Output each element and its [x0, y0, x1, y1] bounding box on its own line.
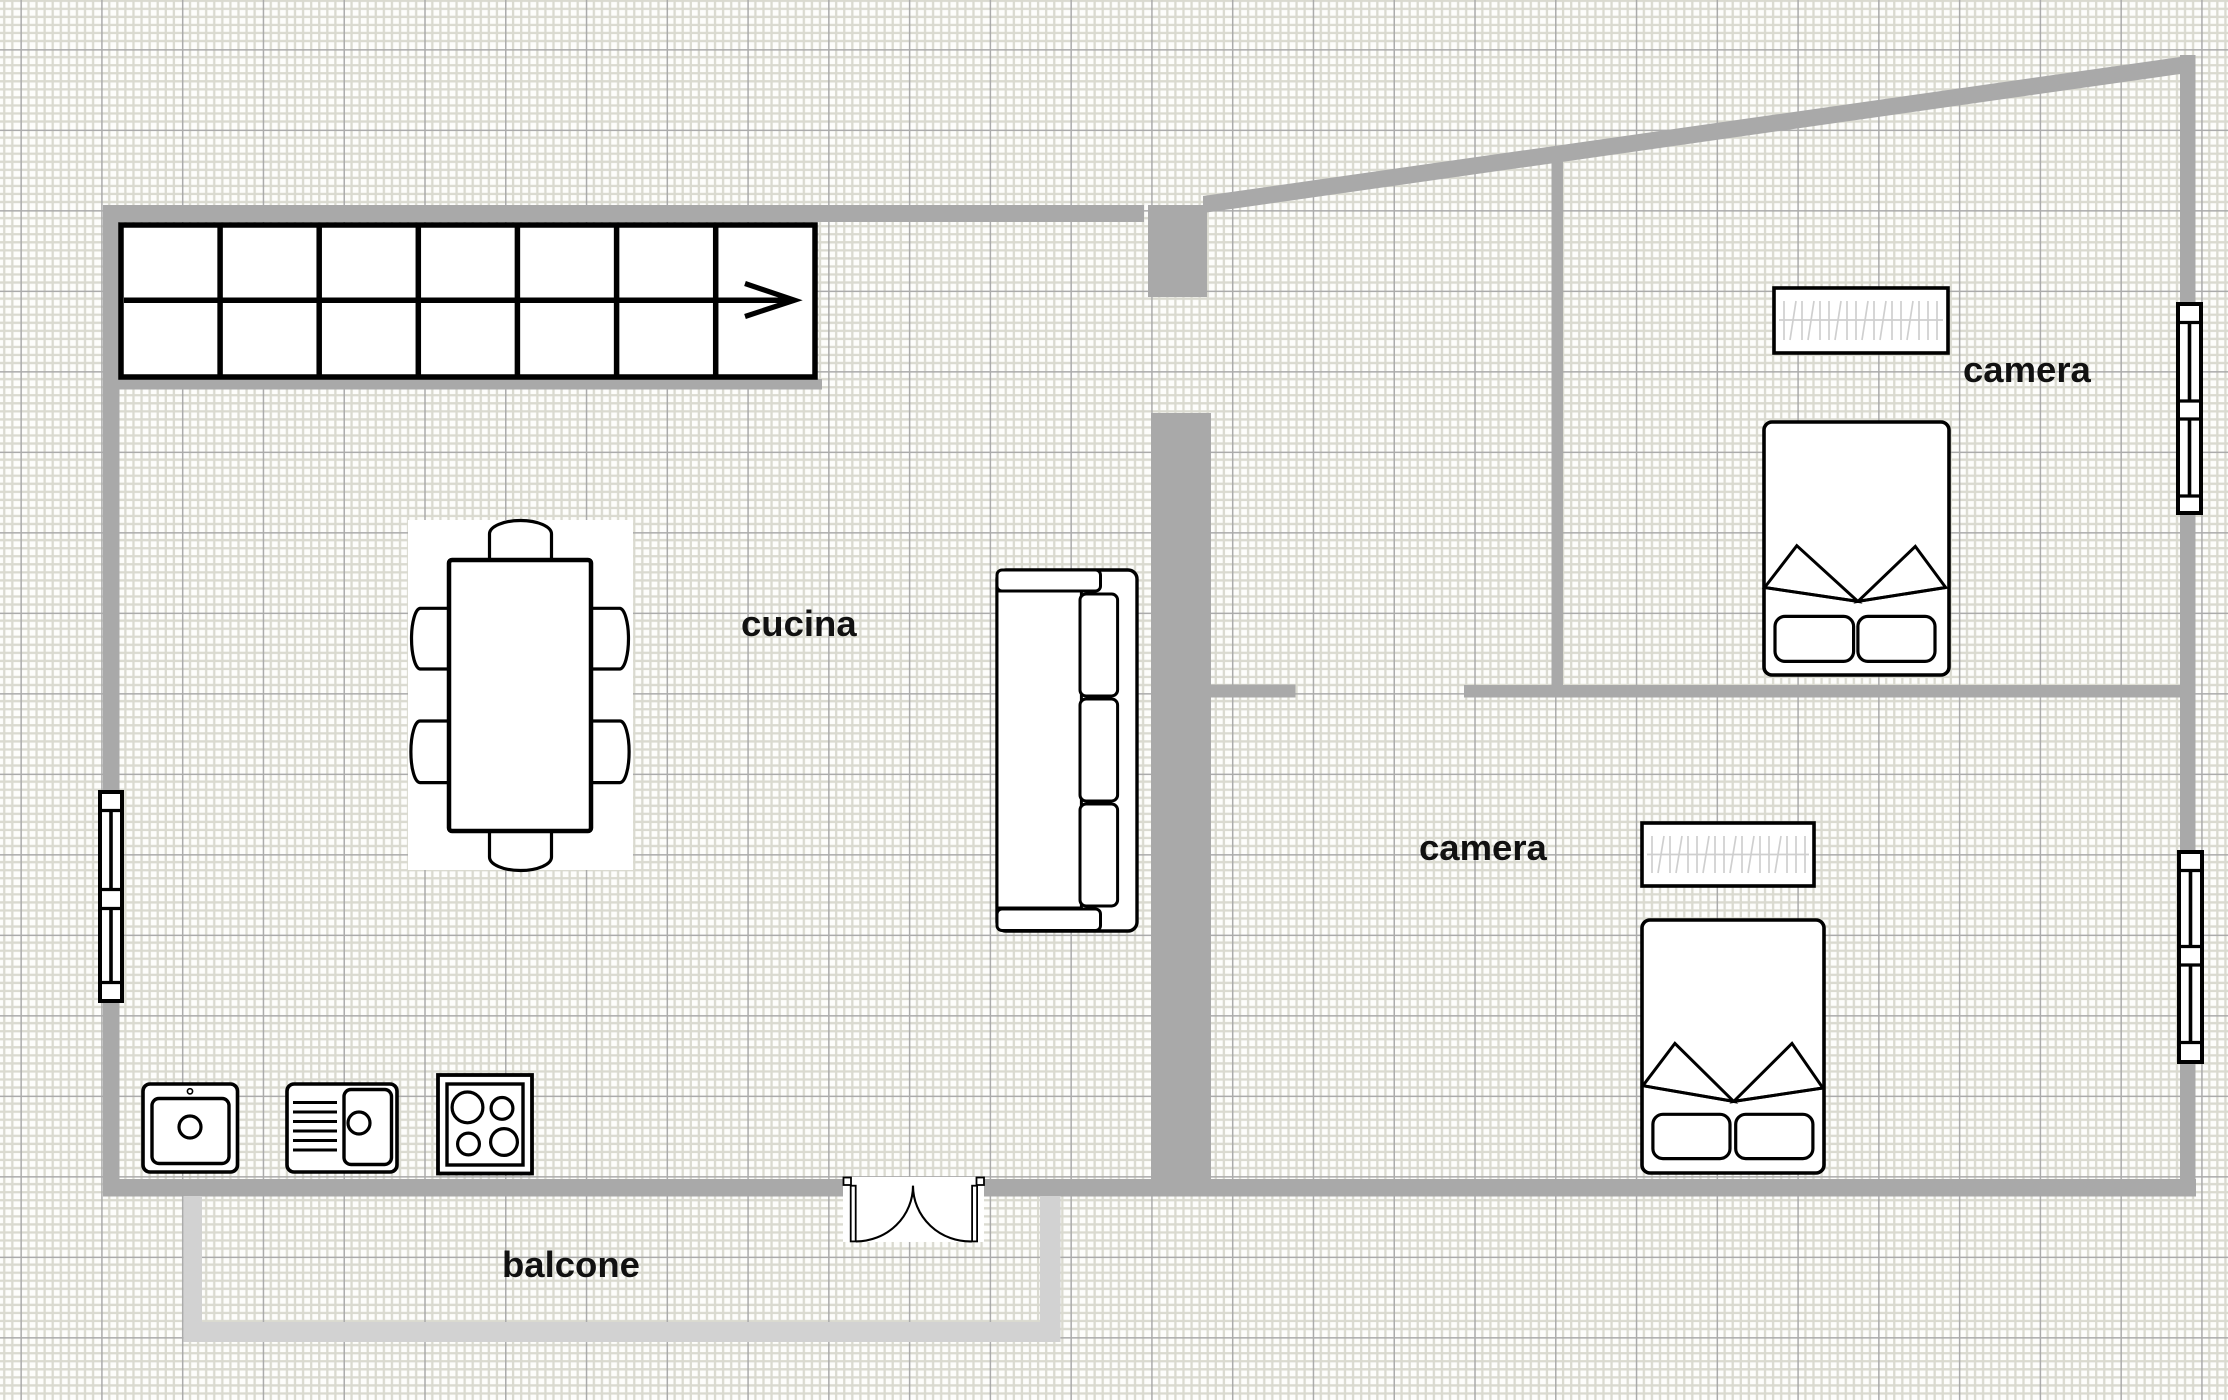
svg-text:cucina: cucina: [741, 603, 857, 644]
svg-text:balcone: balcone: [502, 1244, 640, 1285]
svg-text:camera: camera: [1419, 827, 1548, 868]
svg-text:camera: camera: [1963, 349, 2092, 390]
